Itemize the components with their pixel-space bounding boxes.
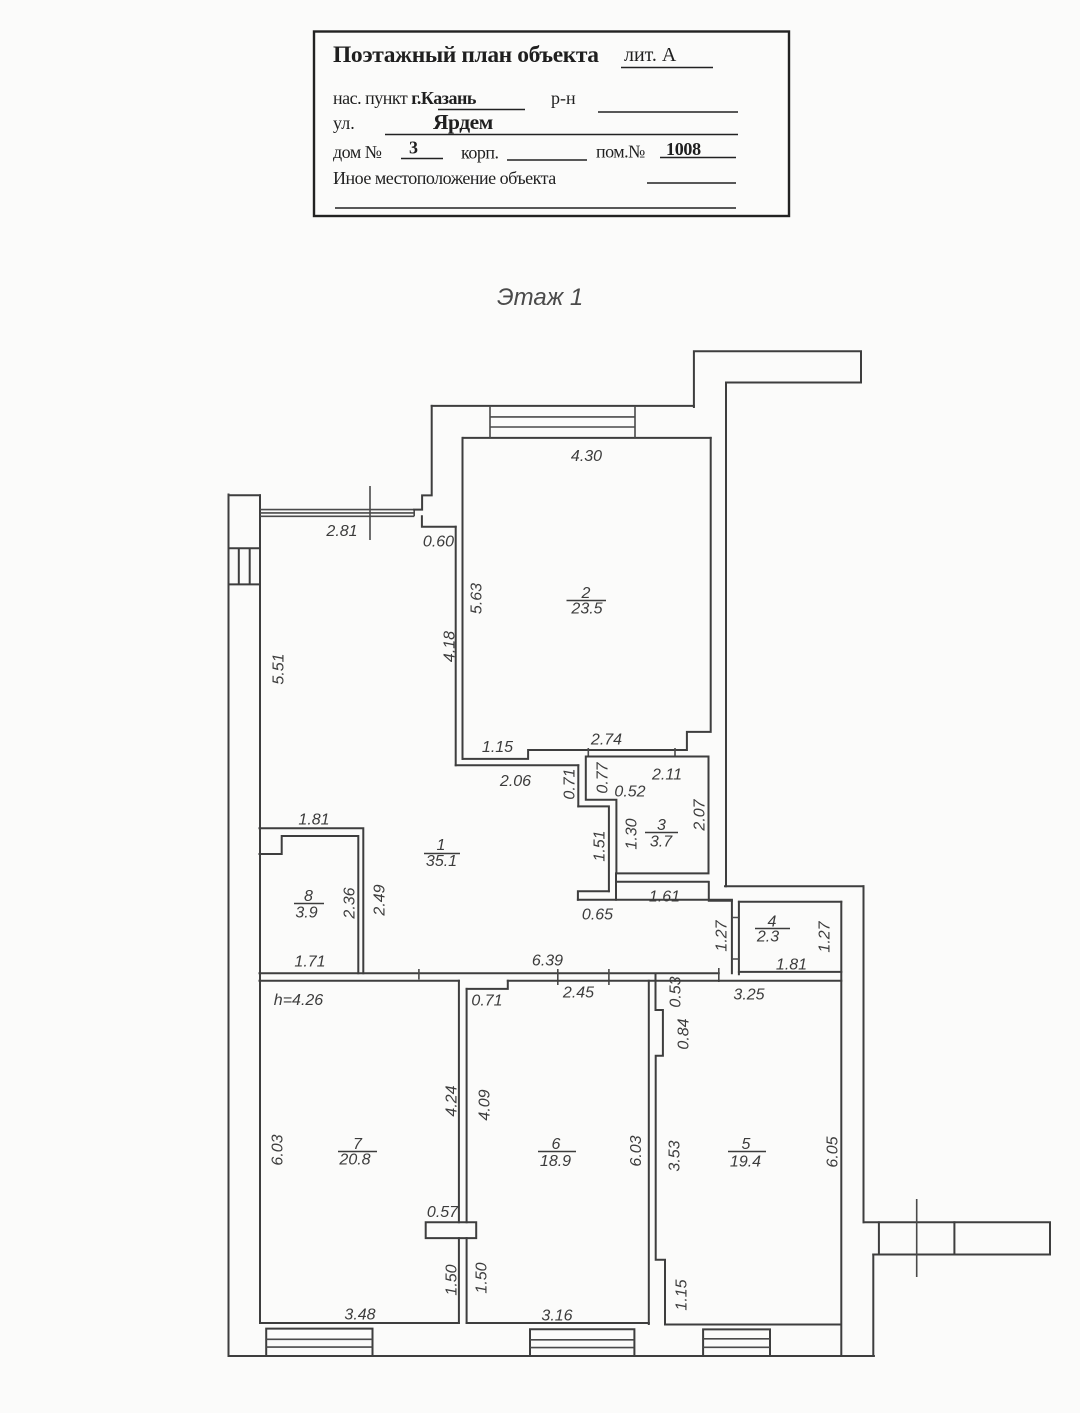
svg-text:2.06: 2.06 — [499, 773, 531, 790]
svg-text:0.65: 0.65 — [582, 907, 613, 924]
svg-text:0.71: 0.71 — [562, 768, 579, 799]
svg-text:7: 7 — [353, 1136, 363, 1153]
svg-text:лит. А: лит. А — [624, 44, 677, 66]
svg-text:2.3: 2.3 — [756, 929, 779, 946]
svg-text:1008: 1008 — [666, 139, 701, 159]
svg-text:1.50: 1.50 — [444, 1264, 461, 1295]
svg-text:35.1: 35.1 — [426, 853, 457, 870]
svg-text:3.25: 3.25 — [733, 987, 764, 1004]
svg-text:3: 3 — [657, 817, 666, 834]
svg-text:23.5: 23.5 — [570, 601, 602, 618]
svg-text:Ярдем: Ярдем — [433, 110, 493, 134]
svg-text:4.30: 4.30 — [571, 448, 602, 465]
svg-text:h=4.26: h=4.26 — [274, 992, 323, 1009]
svg-text:6.03: 6.03 — [270, 1134, 287, 1165]
svg-text:0.52: 0.52 — [614, 784, 645, 801]
svg-text:1.71: 1.71 — [294, 954, 325, 971]
svg-text:3.9: 3.9 — [295, 905, 317, 922]
svg-text:корп.: корп. — [461, 143, 498, 163]
svg-text:1.81: 1.81 — [776, 957, 807, 974]
svg-text:0.77: 0.77 — [595, 761, 612, 793]
svg-text:1.50: 1.50 — [474, 1262, 491, 1293]
svg-text:8: 8 — [304, 888, 313, 905]
svg-text:6: 6 — [552, 1136, 561, 1153]
svg-text:1.27: 1.27 — [714, 919, 731, 951]
svg-text:1.15: 1.15 — [674, 1279, 691, 1310]
svg-text:2: 2 — [581, 585, 591, 602]
svg-text:3.48: 3.48 — [344, 1307, 375, 1324]
svg-text:20.8: 20.8 — [338, 1152, 370, 1169]
svg-text:пом.№: пом.№ — [596, 142, 645, 162]
svg-text:Поэтажный план объекта: Поэтажный план объекта — [333, 42, 599, 68]
svg-text:0.60: 0.60 — [423, 534, 454, 551]
svg-text:2.74: 2.74 — [590, 732, 622, 749]
svg-text:1.51: 1.51 — [592, 830, 609, 861]
svg-text:1.27: 1.27 — [817, 920, 834, 952]
svg-text:0.84: 0.84 — [676, 1018, 693, 1049]
svg-text:4.09: 4.09 — [477, 1089, 494, 1120]
svg-text:5: 5 — [742, 1136, 751, 1153]
svg-text:4.18: 4.18 — [442, 631, 459, 662]
svg-text:5.51: 5.51 — [271, 653, 288, 684]
svg-text:2.36: 2.36 — [342, 887, 359, 919]
svg-text:6.05: 6.05 — [825, 1136, 842, 1167]
svg-text:3.53: 3.53 — [667, 1140, 684, 1171]
svg-text:6.03: 6.03 — [628, 1135, 645, 1166]
svg-text:Этаж 1: Этаж 1 — [497, 284, 583, 311]
svg-text:2.49: 2.49 — [372, 884, 389, 916]
svg-text:дом №: дом № — [333, 142, 382, 162]
svg-text:2.45: 2.45 — [562, 985, 594, 1002]
svg-text:2.07: 2.07 — [692, 798, 709, 831]
svg-text:ул.: ул. — [333, 113, 355, 133]
svg-text:1: 1 — [437, 837, 446, 854]
svg-text:3.7: 3.7 — [650, 834, 673, 851]
svg-text:2.11: 2.11 — [651, 767, 682, 784]
svg-text:1.61: 1.61 — [649, 889, 680, 906]
svg-text:3: 3 — [409, 138, 418, 158]
svg-text:5.63: 5.63 — [469, 583, 486, 614]
svg-text:2.81: 2.81 — [325, 523, 357, 540]
svg-text:4.24: 4.24 — [444, 1085, 461, 1116]
svg-text:3.16: 3.16 — [541, 1308, 572, 1325]
svg-text:1.81: 1.81 — [298, 812, 329, 829]
svg-text:Иное местоположение объекта: Иное местоположение объекта — [333, 168, 556, 188]
svg-text:0.53: 0.53 — [668, 976, 685, 1007]
svg-text:6.39: 6.39 — [532, 953, 563, 970]
svg-text:19.4: 19.4 — [730, 1154, 761, 1171]
svg-text:1.15: 1.15 — [482, 739, 513, 756]
svg-text:0.71: 0.71 — [471, 993, 502, 1010]
svg-text:1.30: 1.30 — [624, 818, 641, 849]
svg-text:18.9: 18.9 — [540, 1153, 571, 1170]
svg-text:р-н: р-н — [551, 88, 576, 108]
svg-text:0.57: 0.57 — [427, 1204, 459, 1221]
svg-text:нас. пункт г.Казань: нас. пункт г.Казань — [333, 88, 477, 108]
